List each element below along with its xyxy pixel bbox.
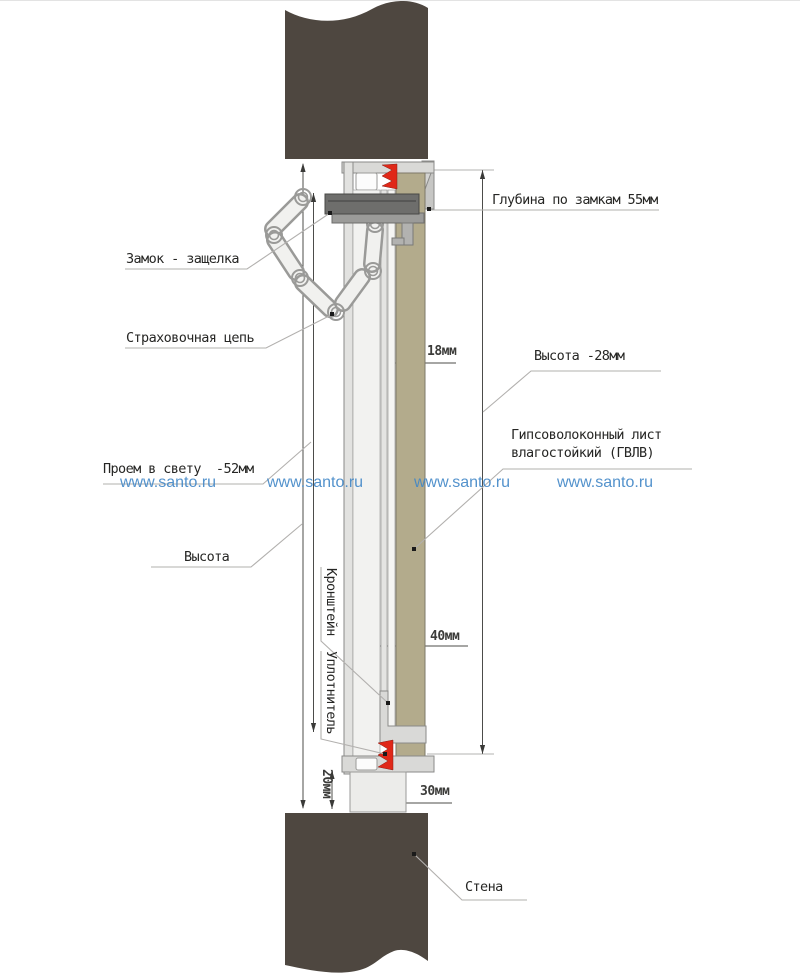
label-height-left: Высота	[184, 550, 229, 566]
technical-drawing-page: Глубина по замкам 55мм Замок - защелка С…	[0, 0, 800, 977]
label-height-right: Высота -28мм	[534, 349, 624, 365]
label-safety-chain: Страховочная цепь	[126, 331, 254, 347]
watermark-2: www.santo.ru	[267, 474, 363, 492]
dim-40mm: 40мм	[430, 630, 459, 645]
watermark-1: www.santo.ru	[120, 474, 216, 492]
extension-lines	[427, 170, 494, 754]
frame-left-channel	[344, 162, 353, 774]
watermark-3: www.santo.ru	[414, 474, 510, 492]
dim-18mm: 18мм	[427, 345, 456, 360]
frame-chamber-top	[356, 173, 377, 190]
label-gvl-panel: Гипсоволоконный лист влагостойкий (ГВЛВ)	[511, 427, 693, 463]
dim-30mm: 30мм	[420, 785, 449, 800]
label-depth-locks: Глубина по замкам 55мм	[492, 193, 658, 209]
wall-top	[285, 1, 428, 159]
label-bracket: Кронштейн	[322, 568, 338, 636]
door-leaf-inner	[388, 190, 395, 736]
mounting-spacer	[350, 772, 406, 812]
frame-chamber-bottom	[356, 758, 377, 770]
label-lock-latch: Замок - защелка	[126, 252, 239, 268]
wall-bottom	[285, 813, 428, 973]
label-wall: Стена	[465, 880, 503, 896]
dim-20mm: 20мм	[318, 769, 333, 798]
watermark-4: www.santo.ru	[557, 474, 653, 492]
label-seal: Уплотнитель	[322, 651, 338, 734]
gvl-panel	[396, 173, 425, 758]
